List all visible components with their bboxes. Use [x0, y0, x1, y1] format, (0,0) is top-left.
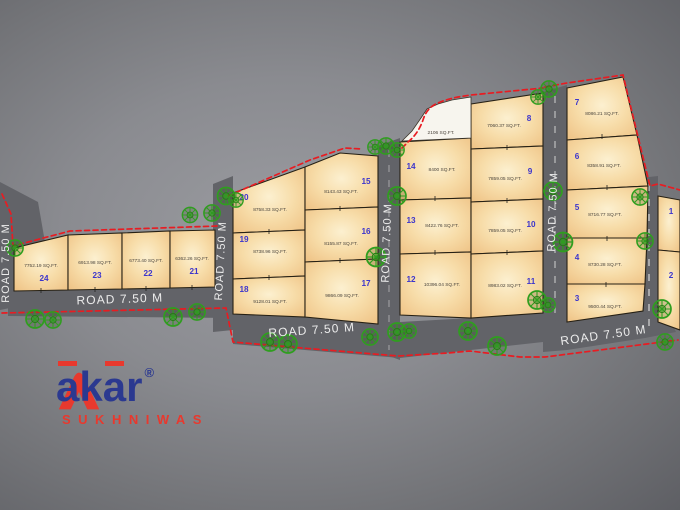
plot-8-number: 8: [527, 114, 532, 123]
plot-1: 1: [658, 196, 680, 252]
plot-19-area: 8738.96 SQ.FT.: [253, 249, 287, 255]
plot-17: 17 9866.09 SQ.FT.: [305, 259, 378, 324]
tree-icon: [459, 322, 477, 340]
plot-9: 9 7859.05 SQ.FT.: [471, 146, 543, 202]
plot-16-area: 8155.87 SQ.FT.: [324, 241, 358, 247]
brand-letter: a: [103, 370, 126, 404]
plot-4-number: 4: [575, 253, 580, 262]
plot-5-number: 5: [575, 203, 580, 212]
plot-24-area: 7752.19 SQ.FT.: [24, 263, 58, 269]
tree-icon: [45, 312, 61, 328]
plot-15: 15 8143.43 SQ.FT.: [305, 153, 378, 210]
plot-20-area: 8758.33 SQ.FT.: [253, 207, 287, 213]
site-layout-map: 7752.19 SQ.FT. 24 6913.98 SQ.FT. 23 6773…: [0, 0, 680, 510]
plot-13-number: 13: [406, 216, 416, 225]
plot-14-area: 8400 SQ.FT.: [429, 167, 456, 173]
plot-11-area: 8983.02 SQ.FT.: [488, 283, 522, 289]
tree-icon: [26, 310, 44, 328]
plot-15-area: 8143.43 SQ.FT.: [324, 189, 358, 195]
plot-21: 6362.26 SQ.FT. 21: [170, 230, 215, 288]
plot-7: 7 8086.21 SQ.FT.: [567, 77, 637, 140]
plot-7-number: 7: [575, 98, 580, 107]
tree-icon: [229, 193, 243, 207]
tree-icon: [637, 233, 653, 249]
road-label-left: ROAD 7.50 M: [0, 223, 12, 302]
brand-letter: a: [56, 370, 79, 404]
plot-3-number: 3: [575, 294, 580, 303]
tree-icon: [390, 143, 404, 157]
plot-4-area: 8730.28 SQ.FT.: [588, 262, 622, 268]
open-plot-area: 2106 SQ.FT.: [428, 130, 455, 136]
plot-12-area: 10396.04 SQ.FT.: [424, 282, 460, 288]
layout-canvas: 7752.19 SQ.FT. 24 6913.98 SQ.FT. 23 6773…: [0, 0, 680, 510]
brand-letter: k: [79, 370, 102, 404]
open-plot: 2106 SQ.FT.: [402, 97, 471, 141]
tree-icon: [488, 337, 506, 355]
plot-13-area: 8422.76 SQ.FT.: [425, 223, 459, 229]
tree-icon: [402, 324, 416, 338]
plot-14: 14 8400 SQ.FT.: [400, 138, 471, 200]
plot-10-area: 7859.05 SQ.FT.: [488, 228, 522, 234]
logo-row: akar®: [56, 370, 226, 404]
tree-icon: [632, 189, 648, 205]
plot-8-area: 7060.37 SQ.FT.: [487, 123, 521, 129]
plot-3-area: 9500.44 SQ.FT.: [588, 304, 622, 310]
plot-5-area: 8716.77 SQ.FT.: [588, 212, 622, 218]
plot-19: 19 8738.96 SQ.FT.: [233, 230, 305, 279]
tree-icon: [189, 304, 205, 320]
plot-22-number: 22: [143, 269, 153, 278]
tree-icon: [204, 205, 220, 221]
plot-6: 6 8358.91 SQ.FT.: [567, 135, 648, 190]
registered-mark: ®: [144, 368, 154, 379]
plot-22: 6773.40 SQ.FT. 22: [122, 231, 170, 289]
plot-23: 6913.98 SQ.FT. 23: [68, 233, 122, 290]
plot-17-area: 9866.09 SQ.FT.: [325, 293, 359, 299]
plot-9-area: 7859.05 SQ.FT.: [488, 176, 522, 182]
plot-23-area: 6913.98 SQ.FT.: [78, 260, 112, 266]
plot-19-number: 19: [239, 235, 249, 244]
plot-12: 12 10396.04 SQ.FT.: [400, 252, 471, 318]
plot-18-area: 9128.01 SQ.FT.: [253, 299, 287, 305]
tree-icon: [182, 207, 197, 222]
akar-logo: akar® SUKHNIWAS: [56, 370, 226, 427]
plot-15-number: 15: [361, 177, 371, 186]
tree-icon: [164, 308, 182, 326]
plot-14-number: 14: [406, 162, 416, 171]
plot-23-number: 23: [92, 271, 102, 280]
tree-icon: [388, 187, 406, 205]
plot-7-area: 8086.21 SQ.FT.: [585, 111, 619, 117]
plot-24-number: 24: [39, 274, 49, 283]
plot-6-number: 6: [575, 152, 580, 161]
plot-6-area: 8358.91 SQ.FT.: [587, 163, 621, 169]
plot-22-area: 6773.40 SQ.FT.: [129, 258, 163, 264]
brand-subtitle: SUKHNIWAS: [56, 412, 226, 427]
plot-18-number: 18: [239, 285, 249, 294]
plot-16-number: 16: [361, 227, 371, 236]
tree-icon: [653, 300, 671, 318]
brand-letter: r: [126, 370, 142, 404]
plot-11-number: 11: [527, 277, 536, 286]
plot-13: 13 8422.76 SQ.FT.: [400, 198, 471, 254]
plot-10: 10 7859.05 SQ.FT.: [471, 199, 543, 254]
plot-10-number: 10: [526, 220, 536, 229]
plot-12-number: 12: [406, 275, 416, 284]
plot-17-number: 17: [361, 279, 371, 288]
plot-4: 4 8730.28 SQ.FT.: [567, 238, 647, 284]
tree-icon: [541, 298, 555, 312]
tree-icon: [541, 81, 557, 97]
plot-18: 18 9128.01 SQ.FT.: [233, 276, 305, 317]
plot-9-number: 9: [528, 167, 533, 176]
brand-wordmark: akar®: [56, 370, 154, 404]
plot-21-number: 21: [189, 267, 199, 276]
plot-2-number: 2: [669, 271, 674, 280]
plot-21-area: 6362.26 SQ.FT.: [175, 256, 209, 262]
plot-1-number: 1: [669, 207, 674, 216]
tree-icon: [657, 334, 673, 350]
tree-icon: [362, 329, 378, 345]
